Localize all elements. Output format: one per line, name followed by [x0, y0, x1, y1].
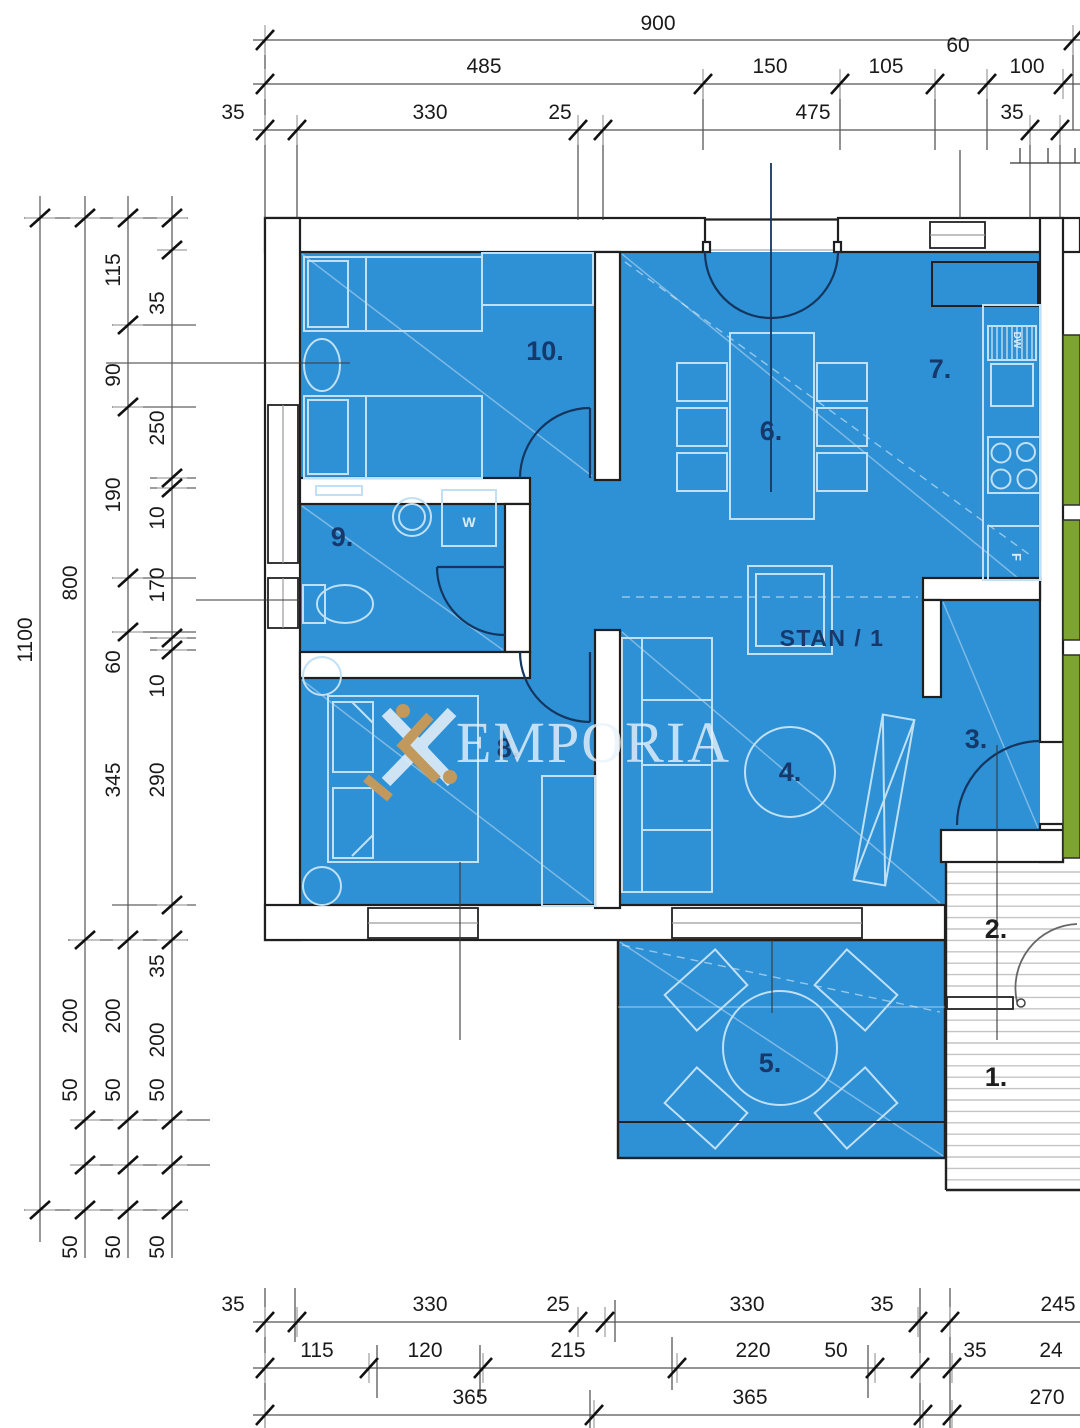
dimension-label: 60 [946, 34, 969, 57]
fixture-label: F [1009, 553, 1024, 561]
dimension-label: 170 [146, 567, 169, 602]
neighbor-green-strip [1063, 655, 1080, 858]
neighbor-unit-green [1063, 335, 1080, 858]
apartment-floor [300, 252, 1040, 1158]
dimension-label: 105 [868, 55, 903, 78]
dimension-label: 200 [59, 998, 82, 1033]
dimension-label: 35 [870, 1293, 893, 1316]
dimension-label: 50 [102, 1235, 125, 1258]
dimension-label: 800 [59, 565, 82, 600]
dimension-label: 35 [146, 954, 169, 977]
room-number: 3. [965, 724, 988, 754]
dimension-label: 150 [752, 55, 787, 78]
window-bottom-living [672, 908, 862, 938]
dimension-label: 290 [146, 762, 169, 797]
dimension-label: 100 [1009, 55, 1044, 78]
dimension-label: 35 [221, 1293, 244, 1316]
wall-entry-stub [923, 600, 941, 697]
fixture-label: DW [1011, 332, 1022, 349]
dimension-label: 190 [102, 477, 125, 512]
window-top [930, 222, 985, 248]
dimension-label: 50 [824, 1339, 847, 1362]
floor-plan: 9004851501056010035330254753535330253303… [0, 0, 1080, 1428]
dimension-label: 245 [1040, 1293, 1075, 1316]
dimension-label: 220 [735, 1339, 770, 1362]
window-left-bedroom10 [268, 405, 298, 563]
dimension-label: 10 [146, 506, 169, 529]
dimension-label: 24 [1039, 1339, 1063, 1362]
deck-threshold [947, 997, 1013, 1009]
dimension-label: 200 [146, 1022, 169, 1057]
dimension-label: 50 [59, 1235, 82, 1258]
room-number: 9. [331, 522, 354, 552]
wall-bath-bedroom8 [300, 652, 530, 678]
right-wall-upper [1040, 218, 1063, 742]
entrance-jamb-right [834, 242, 841, 252]
room-number: 10. [526, 336, 564, 366]
entrance-jamb-left [703, 242, 710, 252]
room-number: 4. [779, 757, 802, 787]
neighbor-green-strip [1063, 520, 1080, 640]
room-number: 7. [929, 354, 952, 384]
dimension-label: 50 [102, 1078, 125, 1101]
room-number: 5. [759, 1048, 782, 1078]
fixture-label: W [462, 514, 476, 530]
dimension-label: 35 [963, 1339, 986, 1362]
dimension-label: 10 [146, 674, 169, 697]
dimension-label: 1100 [14, 617, 37, 662]
dimension-label: 200 [102, 998, 125, 1033]
dimension-label: 900 [640, 12, 675, 35]
wall-entry-bottom [941, 830, 1063, 862]
deck-area-overlay [946, 862, 1080, 1190]
dimension-label: 50 [59, 1078, 82, 1101]
wall-kitchen-entry [923, 578, 1040, 600]
deck-floor [946, 862, 1080, 1190]
dimension-label: 365 [732, 1386, 767, 1409]
unit-label: STAN / 1 [780, 625, 885, 651]
dimension-label: 270 [1029, 1386, 1064, 1409]
dimension-label: 330 [729, 1293, 764, 1316]
dimension-label: 35 [1000, 101, 1023, 124]
room-number: 6. [760, 416, 783, 446]
watermark-text: EMPORIA [456, 710, 731, 775]
dimension-label: 50 [146, 1235, 169, 1258]
room-number: 1. [985, 1062, 1008, 1092]
dimension-label: 35 [146, 291, 169, 314]
dimension-label: 35 [221, 101, 244, 124]
dimension-label: 485 [466, 55, 501, 78]
wall-room10-dining [595, 252, 620, 480]
dimension-label: 475 [795, 101, 830, 124]
wall-bath-hall [505, 504, 530, 652]
neighbor-green-strip [1063, 335, 1080, 505]
dimension-label: 25 [548, 101, 571, 124]
dimension-label: 330 [412, 101, 447, 124]
dimension-label: 90 [102, 363, 125, 386]
dimension-label: 50 [146, 1078, 169, 1101]
dimension-label: 115 [300, 1339, 333, 1362]
window-bottom-bedroom8 [368, 908, 478, 938]
dimension-label: 250 [146, 410, 169, 445]
dimension-label: 330 [412, 1293, 447, 1316]
neighbor-marks [1010, 148, 1080, 163]
top-wall-left [265, 218, 705, 252]
dimension-label: 365 [452, 1386, 487, 1409]
dimension-label: 120 [407, 1339, 442, 1362]
room-number: 2. [985, 914, 1008, 944]
dimension-label: 345 [102, 762, 125, 797]
dimension-label: 25 [546, 1293, 569, 1316]
window-left-bath [268, 578, 298, 628]
dimension-label: 115 [102, 253, 125, 286]
dimension-label: 60 [102, 650, 125, 673]
dimension-label: 215 [550, 1339, 585, 1362]
